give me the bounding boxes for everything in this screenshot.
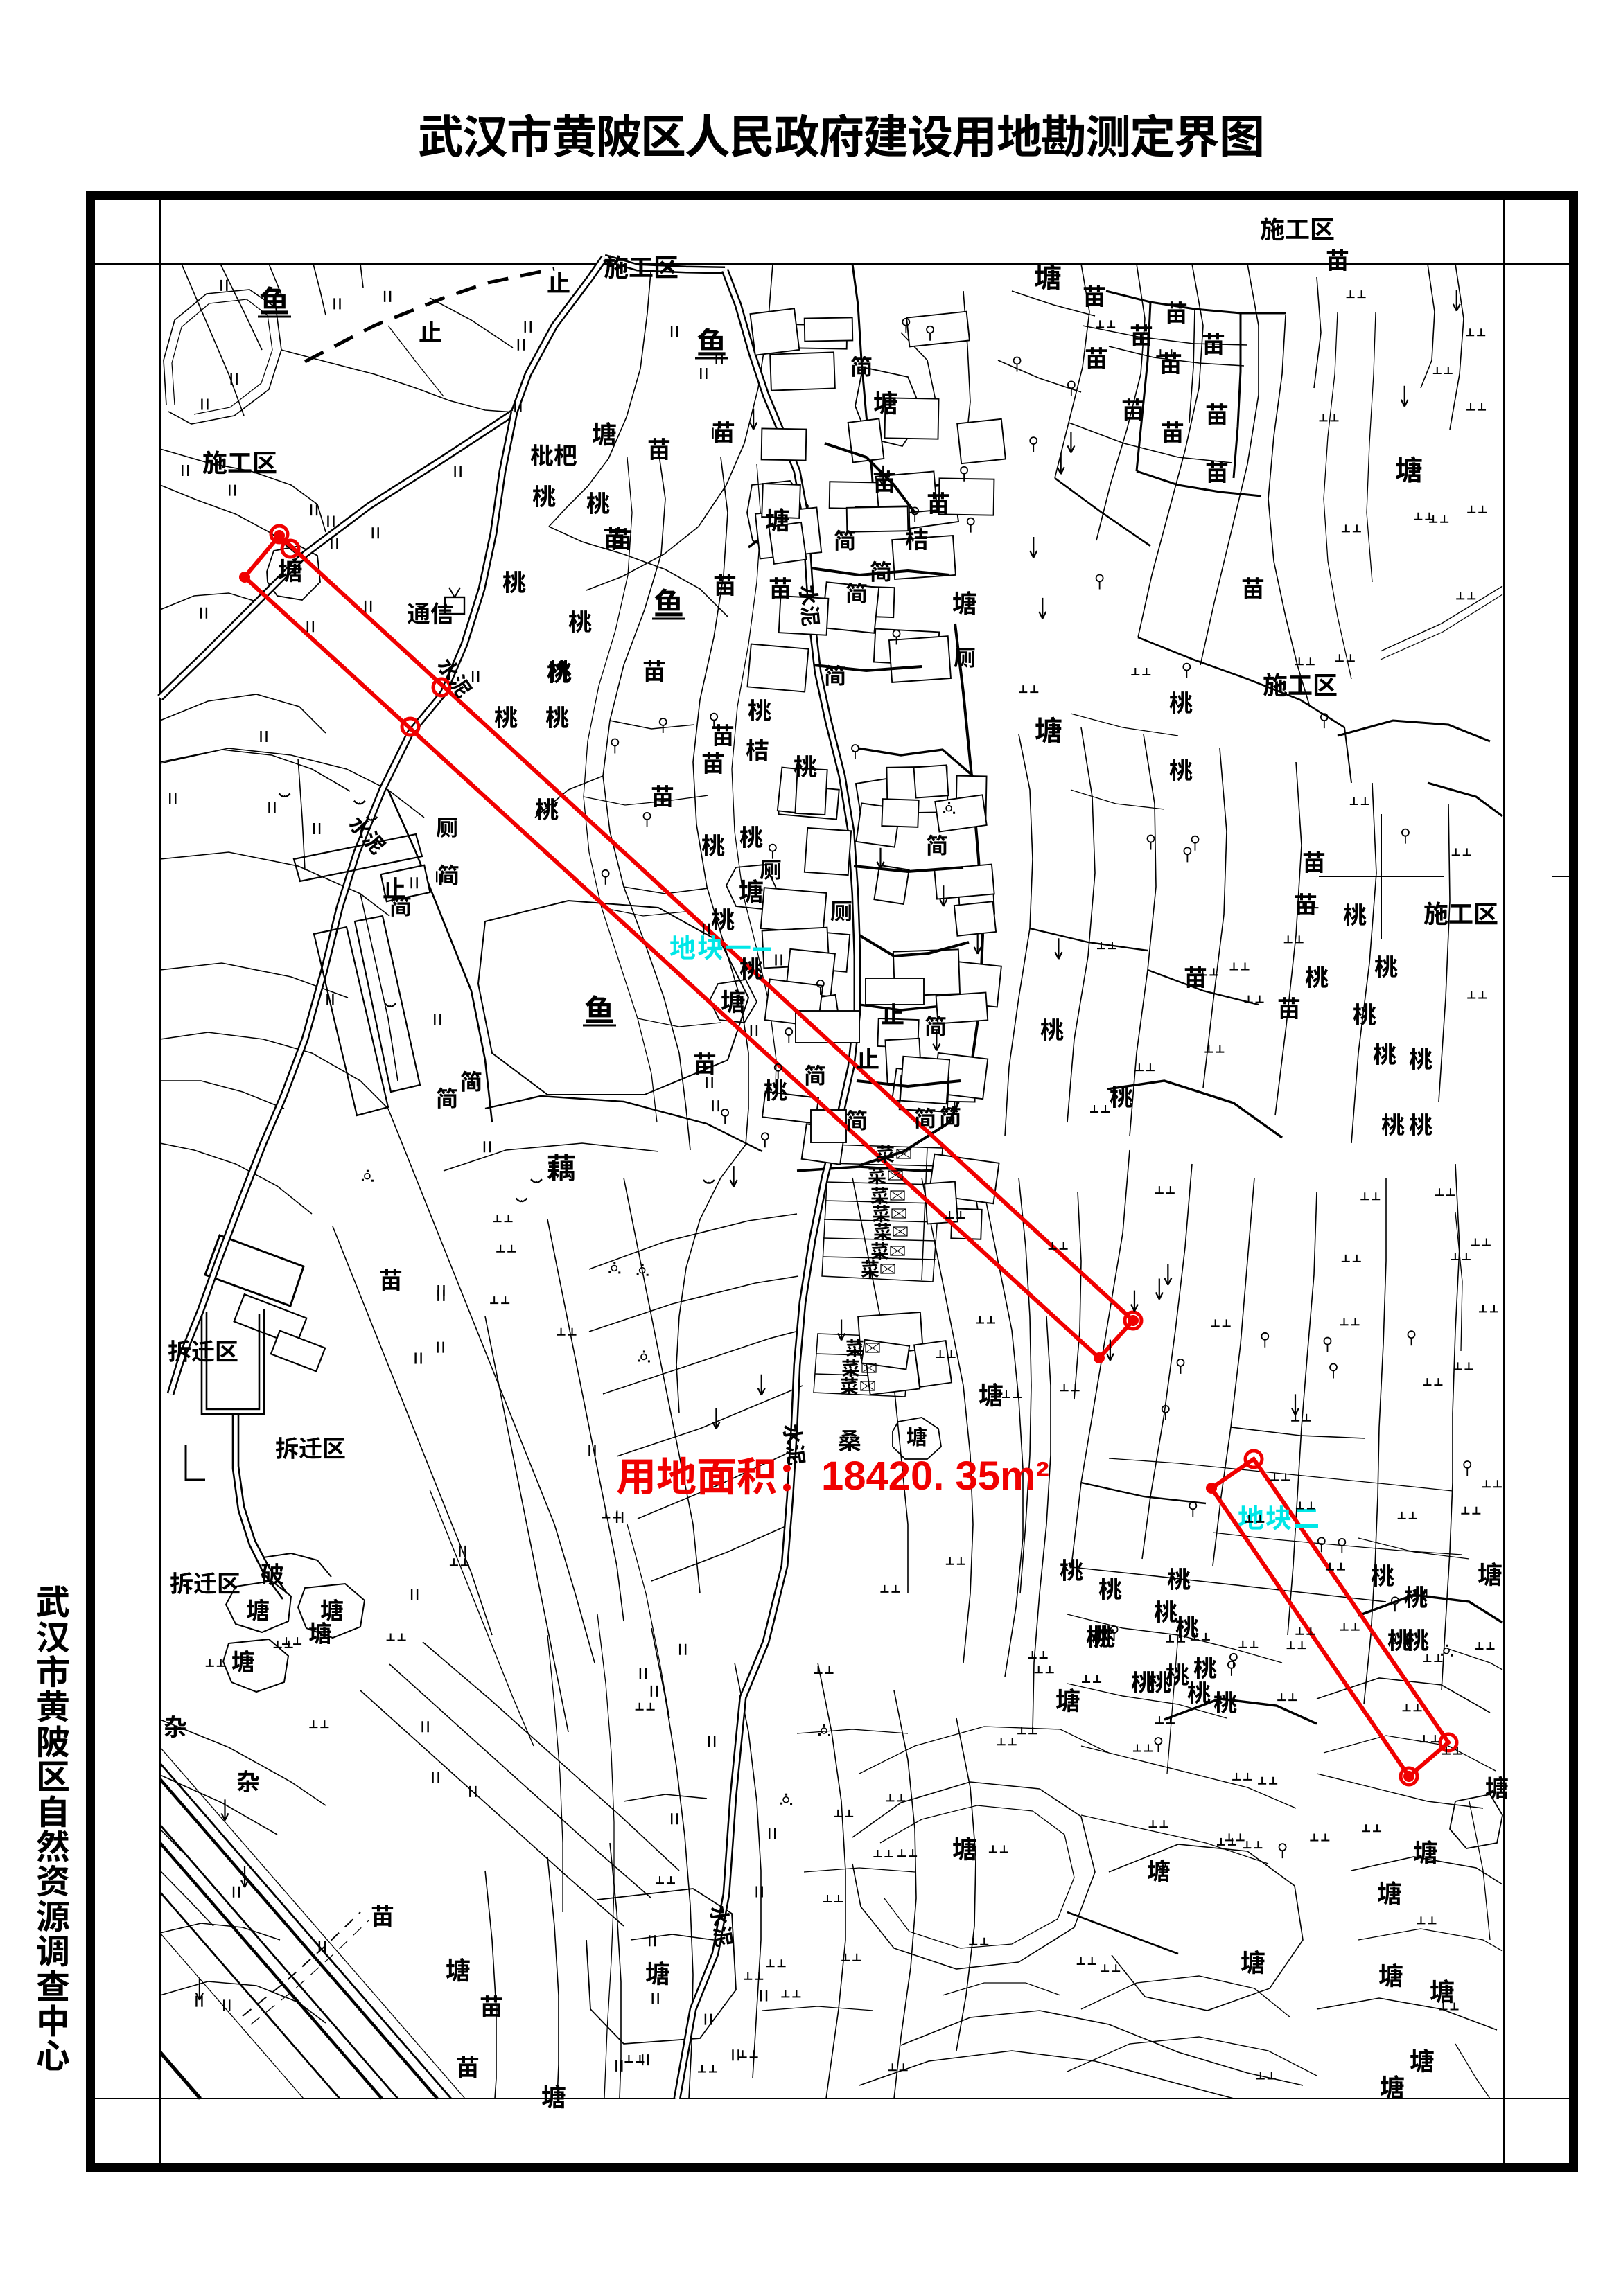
svg-text:18420. 35m²: 18420. 35m² xyxy=(821,1454,1049,1499)
